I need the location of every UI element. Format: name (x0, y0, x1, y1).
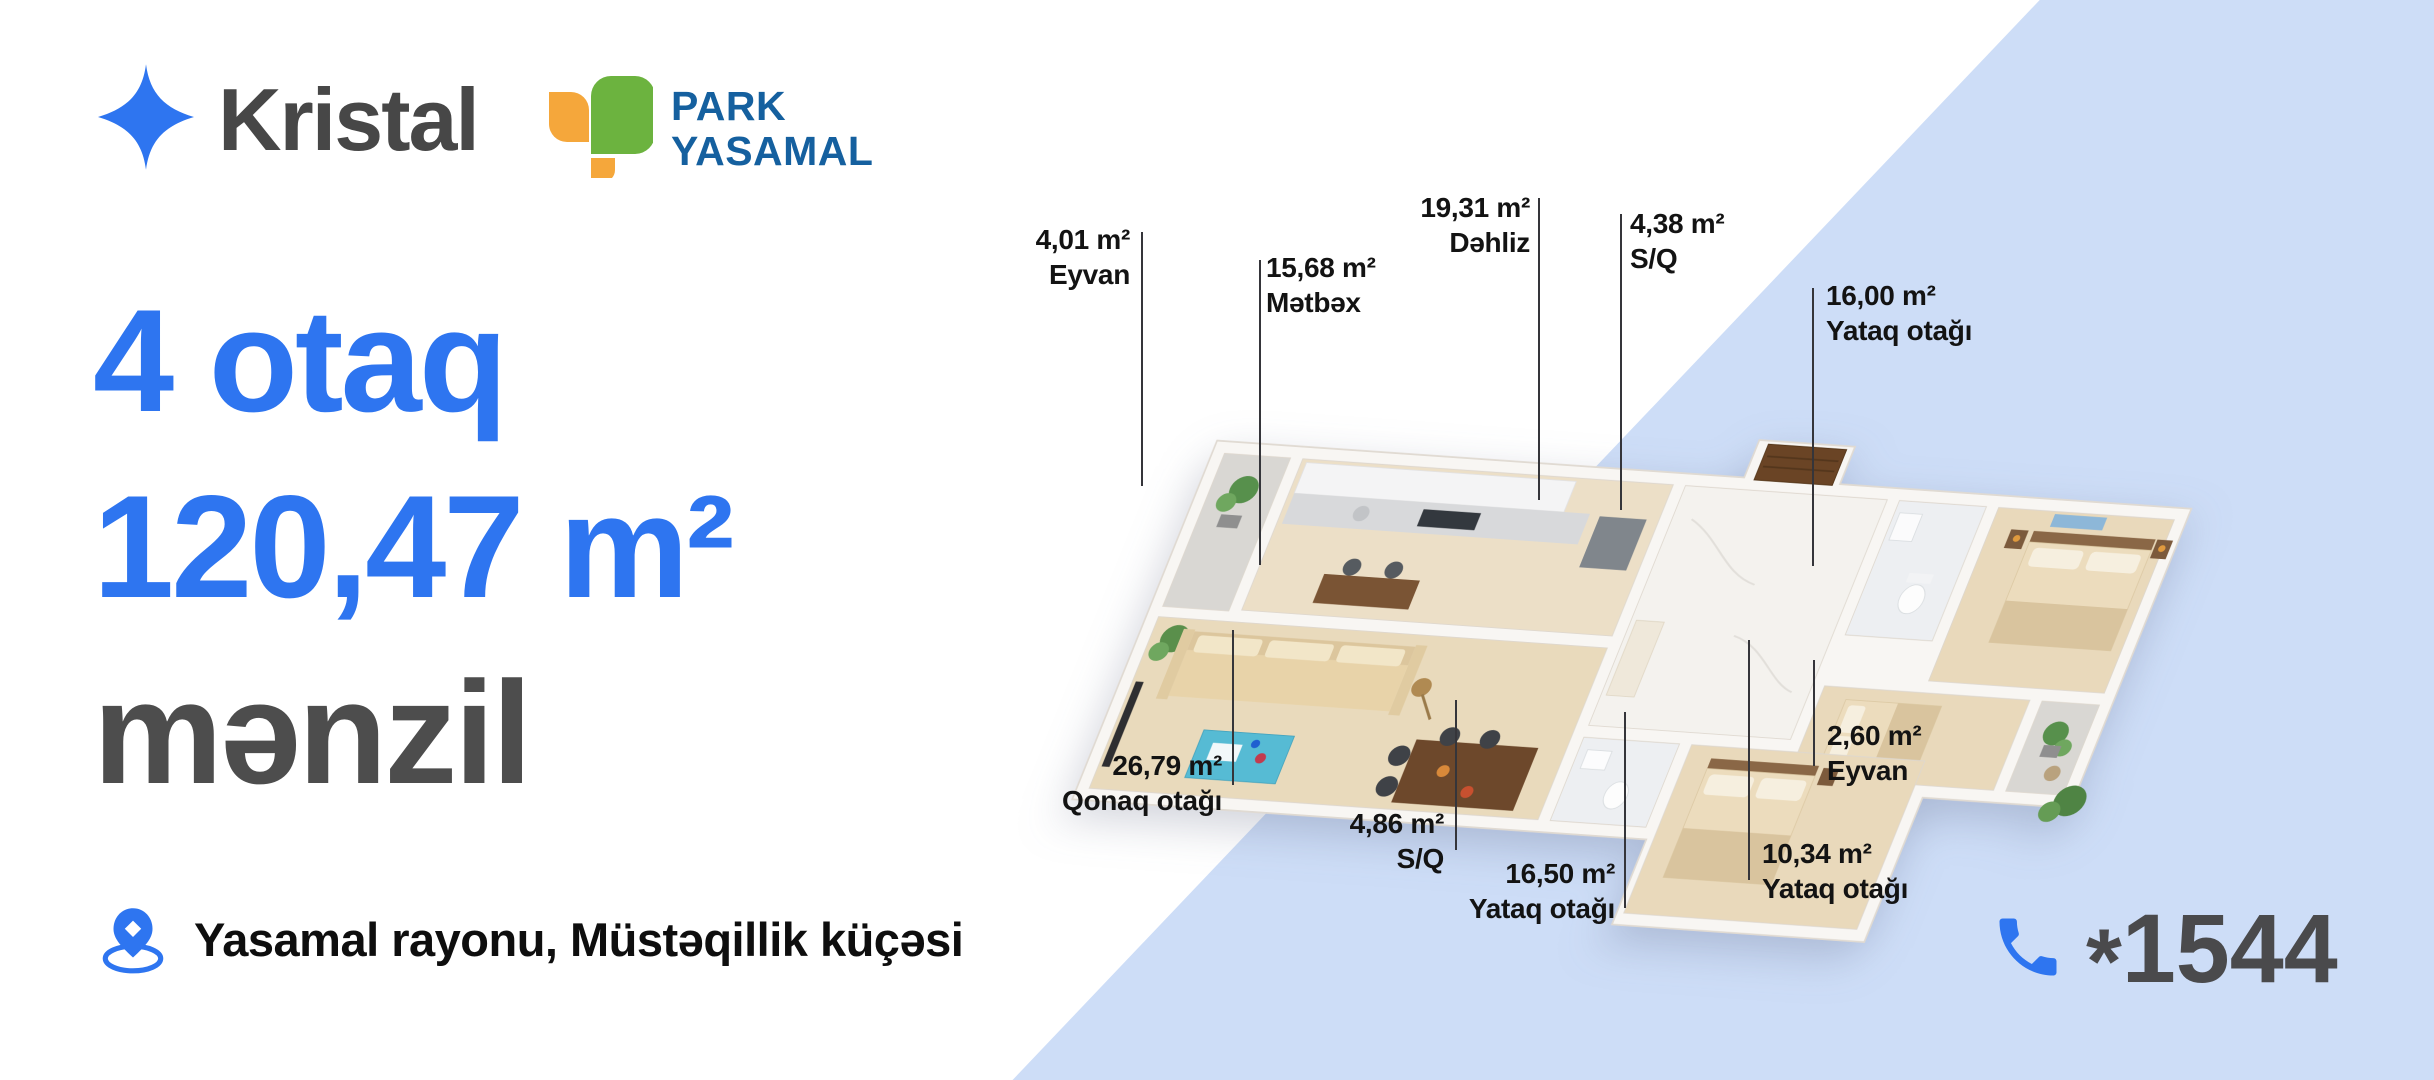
park-yasamal-wordmark: PARK YASAMAL (671, 84, 873, 174)
kristal-diamond-icon (98, 64, 194, 175)
headline-area: 120,47 m² (93, 454, 732, 640)
headline-type: mənzil (93, 640, 732, 826)
park-word-line2: YASAMAL (671, 129, 873, 174)
headline-rooms: 4 otaq (93, 268, 732, 454)
room-label-bedroom-2: 10,34 m² Yataq otağı (1762, 836, 1908, 906)
leader-line-kitchen (1259, 260, 1261, 565)
park-yasamal-logo: PARK YASAMAL (545, 74, 873, 183)
leader-line-bedroom-1 (1812, 288, 1814, 566)
kristal-wordmark: Kristal (218, 69, 478, 171)
leader-line-living (1232, 630, 1234, 785)
park-yasamal-leaf-icon (545, 74, 653, 183)
room-label-bedroom-1: 16,00 m² Yataq otağı (1826, 278, 1972, 348)
phone-number: *1544 (2086, 893, 2338, 1005)
location-row: Yasamal rayonu, Müstəqillik küçəsi (94, 898, 963, 981)
entry-door (1754, 444, 1847, 485)
room-label-living: 26,79 m² Qonaq otağı (1002, 748, 1222, 818)
room-label-bedroom-3: 16,50 m² Yataq otağı (1395, 856, 1615, 926)
leader-line-balcony-1 (1141, 232, 1143, 486)
leader-line-bath-2 (1455, 700, 1457, 850)
room-label-bath-1: 4,38 m² S/Q (1630, 206, 1724, 276)
leader-line-hall (1538, 198, 1540, 500)
headline: 4 otaq 120,47 m² mənzil (93, 268, 732, 826)
leader-line-bedroom-2 (1748, 640, 1750, 880)
park-word-line1: PARK (671, 84, 873, 129)
location-pin-icon (94, 898, 172, 981)
leader-line-balcony-2 (1813, 660, 1815, 766)
room-label-hall: 19,31 m² Dəhliz (1310, 190, 1530, 260)
phone-digits: 1544 (2122, 894, 2338, 1003)
leader-line-bath-1 (1620, 214, 1622, 510)
location-text: Yasamal rayonu, Müstəqillik küçəsi (194, 912, 963, 967)
room-label-balcony-1: 4,01 m² Eyvan (910, 222, 1130, 292)
kristal-logo: Kristal (98, 64, 478, 175)
dining-table (1391, 739, 1538, 810)
leader-line-bedroom-3 (1624, 712, 1626, 908)
room-label-kitchen: 15,68 m² Mətbəx (1266, 250, 1376, 320)
room-label-balcony-2: 2,60 m² Eyvan (1827, 718, 1921, 788)
